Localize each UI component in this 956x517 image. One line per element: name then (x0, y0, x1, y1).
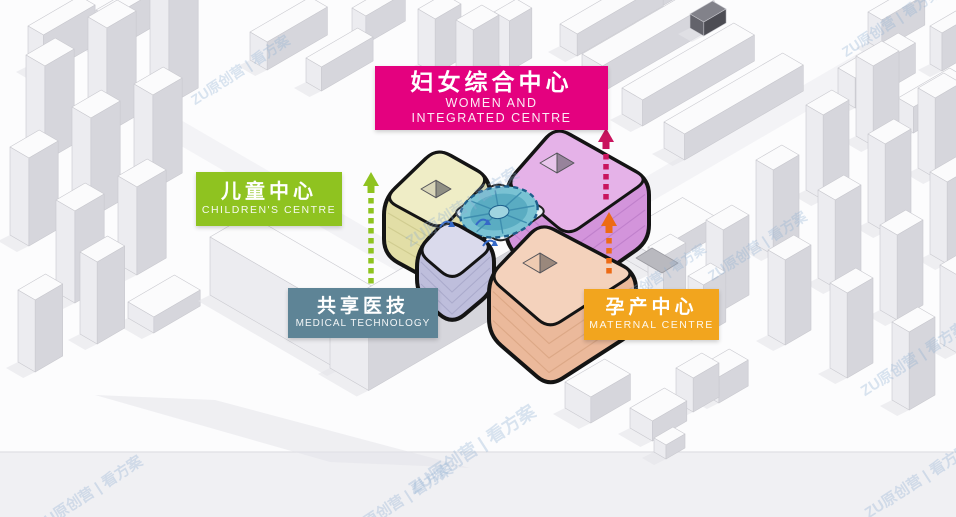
label-children-en: CHILDREN'S CENTRE (202, 204, 336, 217)
label-women-en-line2: INTEGRATED CENTRE (412, 111, 572, 127)
label-maternal-en: MATERNAL CENTRE (589, 319, 714, 332)
label-women-integrated-centre: 妇女综合中心 WOMEN AND INTEGRATED CENTRE (375, 66, 608, 130)
label-medical-technology: 共享医技 MEDICAL TECHNOLOGY (288, 288, 438, 338)
label-women-zh: 妇女综合中心 (411, 69, 573, 95)
label-maternal-centre: 孕产中心 MATERNAL CENTRE (584, 289, 719, 340)
label-medtech-en: MEDICAL TECHNOLOGY (296, 318, 431, 331)
label-maternal-zh: 孕产中心 (605, 297, 697, 319)
label-childrens-centre: 儿童中心 CHILDREN'S CENTRE (196, 172, 342, 226)
label-children-zh: 儿童中心 (221, 181, 317, 204)
label-women-en-line1: WOMEN AND (446, 96, 538, 112)
masterplan-axonometric-rendering: ZU原创营 | 看方案 ZU原创营 | 看方案 ZU原创营 | 看方案 ZU原创… (0, 0, 956, 517)
label-medtech-zh: 共享医技 (317, 296, 409, 318)
